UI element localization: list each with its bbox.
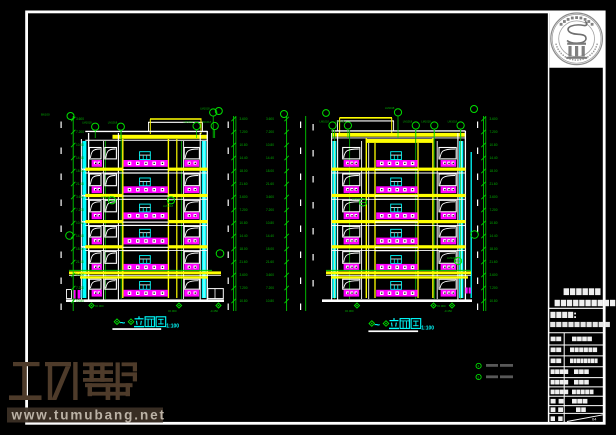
svg-text:21.60: 21.60: [240, 260, 248, 264]
svg-text:3.600: 3.600: [76, 273, 84, 277]
svg-text:21.60: 21.60: [266, 260, 274, 264]
svg-text:1:100: 1:100: [166, 324, 179, 330]
svg-text:LM1018: LM1018: [403, 119, 413, 123]
svg-text:3.600: 3.600: [490, 273, 498, 277]
svg-text:7.200: 7.200: [490, 286, 498, 290]
svg-text:10.80: 10.80: [240, 299, 248, 303]
svg-text:LM1018: LM1018: [163, 204, 174, 208]
svg-text:LM1018: LM1018: [335, 119, 345, 123]
svg-text:LM1018: LM1018: [101, 195, 112, 199]
svg-text:10.80: 10.80: [490, 299, 498, 303]
svg-text:LM1018: LM1018: [421, 119, 431, 123]
svg-text:www.tumubang.net: www.tumubang.net: [11, 408, 166, 423]
svg-text:10.80: 10.80: [266, 299, 274, 303]
svg-text:~: ~: [120, 318, 126, 329]
svg-text:14.40: 14.40: [240, 234, 248, 238]
svg-text:10.80: 10.80: [76, 221, 84, 225]
svg-text:14.40: 14.40: [490, 234, 498, 238]
svg-text:~: ~: [374, 320, 380, 331]
svg-text:7.200: 7.200: [266, 130, 274, 134]
svg-text:18.00: 18.00: [490, 169, 498, 173]
svg-text:10.80: 10.80: [490, 221, 498, 225]
svg-text:-0.450: -0.450: [444, 309, 452, 313]
svg-text:7.200: 7.200: [266, 286, 274, 290]
svg-text:3.600: 3.600: [240, 117, 248, 121]
svg-text:10.80: 10.80: [76, 143, 84, 147]
svg-text:10.80: 10.80: [490, 143, 498, 147]
svg-text:LM1018: LM1018: [202, 120, 212, 124]
svg-text:14.40: 14.40: [76, 156, 84, 160]
svg-text:7.200: 7.200: [266, 208, 274, 212]
svg-text:7.200: 7.200: [490, 208, 498, 212]
svg-text:7.200: 7.200: [240, 208, 248, 212]
svg-text:21.60: 21.60: [76, 182, 84, 186]
svg-text:10.80: 10.80: [240, 221, 248, 225]
svg-text:3.600: 3.600: [266, 117, 274, 121]
svg-text:3.600: 3.600: [76, 117, 84, 121]
svg-text:21.60: 21.60: [490, 182, 498, 186]
svg-text:LM1018: LM1018: [447, 256, 458, 260]
svg-text:14.40: 14.40: [266, 156, 274, 160]
svg-text:04: 04: [592, 417, 597, 422]
svg-text:10.80: 10.80: [240, 143, 248, 147]
svg-text:±0.000: ±0.000: [437, 304, 446, 308]
svg-text:18.00: 18.00: [240, 169, 248, 173]
svg-text:14.40: 14.40: [266, 234, 274, 238]
svg-text:7.200: 7.200: [76, 130, 84, 134]
svg-text:18.00: 18.00: [266, 247, 274, 251]
svg-text:LM1018: LM1018: [448, 119, 458, 123]
svg-text:LM1018: LM1018: [352, 197, 363, 201]
svg-text:7.200: 7.200: [240, 130, 248, 134]
svg-text:±0.000: ±0.000: [345, 309, 354, 313]
svg-text:±0.000: ±0.000: [95, 304, 104, 308]
svg-text:3.600: 3.600: [490, 117, 498, 121]
svg-text:14.40: 14.40: [490, 156, 498, 160]
svg-text:18.00: 18.00: [240, 247, 248, 251]
svg-text:18.00: 18.00: [266, 169, 274, 173]
svg-text:21.60: 21.60: [76, 260, 84, 264]
svg-text:7.200: 7.200: [76, 208, 84, 212]
svg-text:21.60: 21.60: [490, 260, 498, 264]
svg-text:LM1018: LM1018: [184, 120, 194, 124]
svg-text:18.00: 18.00: [490, 247, 498, 251]
svg-text:LM1018: LM1018: [200, 106, 210, 110]
svg-text:3.600: 3.600: [240, 273, 248, 277]
svg-text:10.80: 10.80: [266, 221, 274, 225]
svg-text:7.200: 7.200: [76, 286, 84, 290]
svg-text:1:100: 1:100: [421, 325, 434, 331]
svg-text:3.600: 3.600: [266, 273, 274, 277]
svg-text:LM1018: LM1018: [320, 119, 330, 123]
svg-text:14.40: 14.40: [76, 234, 84, 238]
svg-text:21.60: 21.60: [266, 182, 274, 186]
svg-text:10.80: 10.80: [266, 143, 274, 147]
svg-text:-0.450: -0.450: [210, 309, 218, 313]
svg-text:3.600: 3.600: [490, 195, 498, 199]
svg-text:10.80: 10.80: [76, 299, 84, 303]
svg-text:3.600: 3.600: [240, 195, 248, 199]
svg-text:3.600: 3.600: [266, 195, 274, 199]
svg-text:3.600: 3.600: [76, 195, 84, 199]
svg-text:7.200: 7.200: [240, 286, 248, 290]
svg-text:18.00: 18.00: [76, 247, 84, 251]
svg-text:LM1018: LM1018: [385, 106, 395, 110]
svg-text:14.40: 14.40: [240, 156, 248, 160]
svg-text:±0.000: ±0.000: [168, 309, 177, 313]
svg-text:21.60: 21.60: [240, 182, 248, 186]
svg-text:18.00: 18.00: [76, 169, 84, 173]
svg-text:LM1018: LM1018: [108, 121, 118, 125]
svg-text:7.200: 7.200: [490, 130, 498, 134]
svg-text:B6100: B6100: [41, 113, 50, 117]
